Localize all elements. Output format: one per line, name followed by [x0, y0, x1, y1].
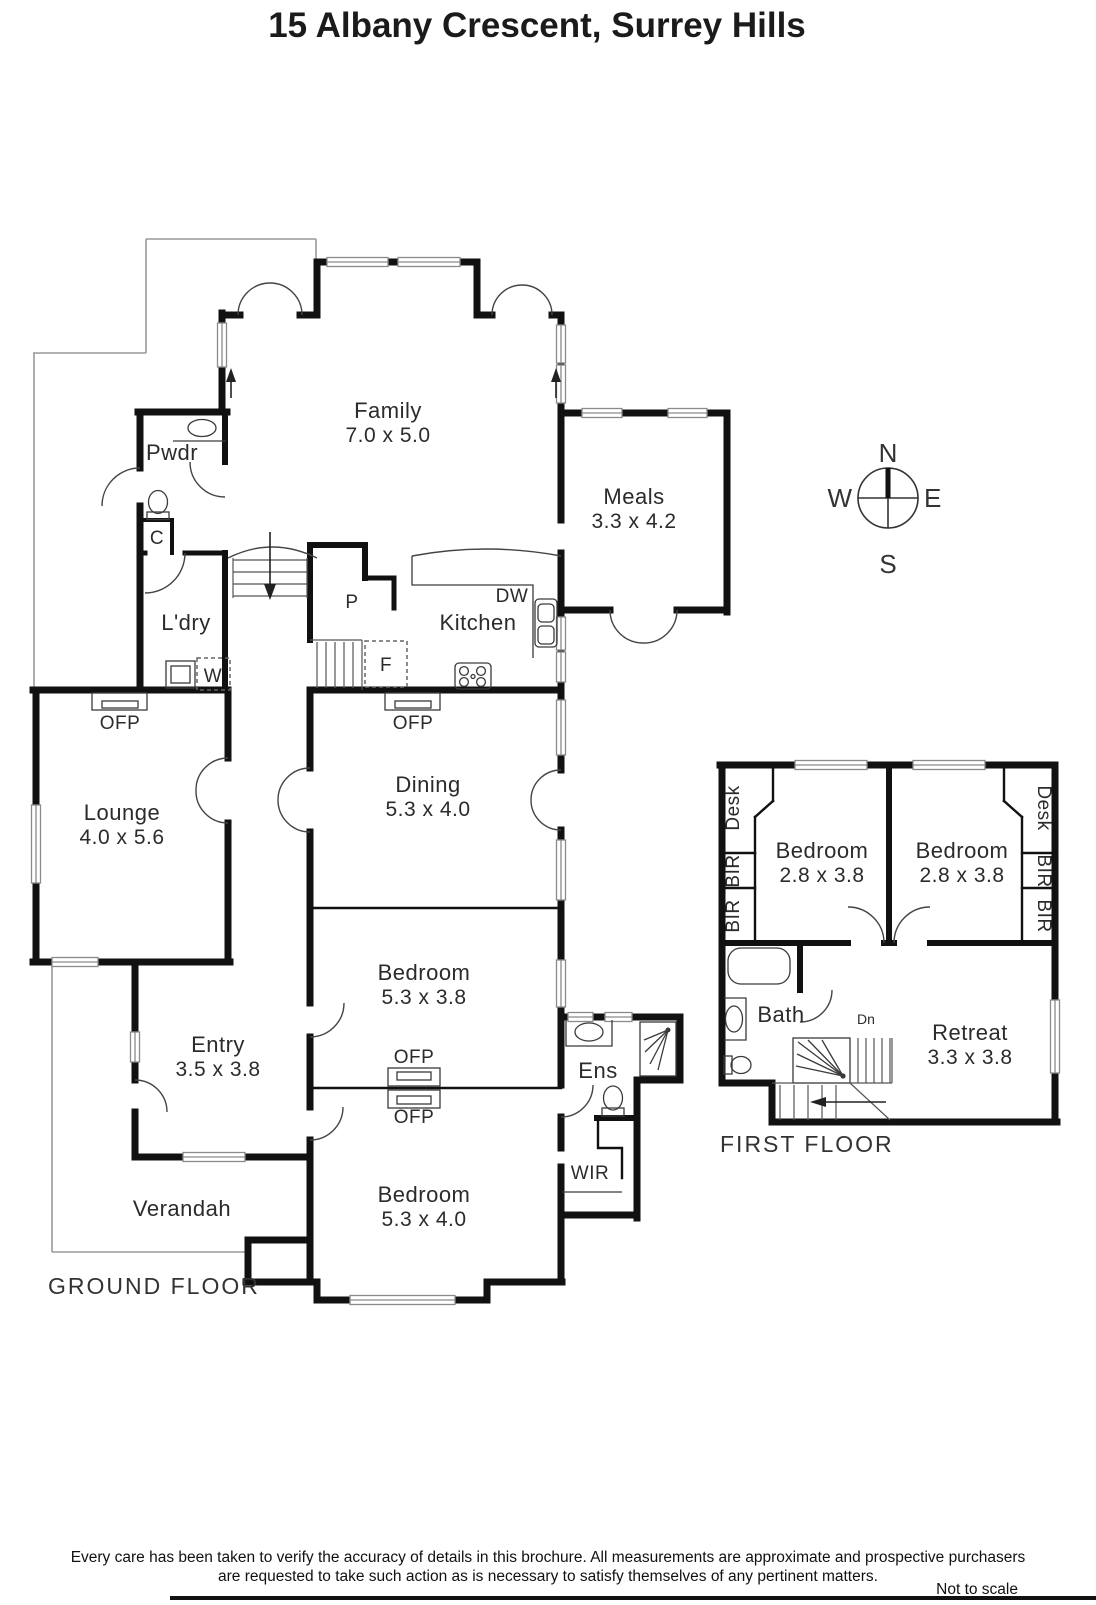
label-washer: W — [204, 666, 222, 687]
compass: N S W E — [827, 438, 941, 579]
room-label-ldry: L'dry — [161, 610, 211, 635]
floorplan-svg: 15 Albany Crescent, Surrey Hills — [0, 0, 1096, 1600]
disclaimer-line-2: are requested to take such action as is … — [218, 1568, 878, 1585]
bath-vanity — [724, 998, 746, 1040]
label-fridge: F — [380, 655, 392, 676]
stairs-down-arrow-first — [810, 1097, 826, 1107]
ensuite-toilet — [602, 1086, 624, 1116]
disclaimer-line-1: Every care has been taken to verify the … — [71, 1549, 1026, 1566]
room-label-bedleft-dims: 2.8 x 3.8 — [779, 864, 864, 887]
room-label-retreat-name: Retreat — [932, 1020, 1008, 1045]
label-ofp-dining: OFP — [393, 713, 434, 734]
room-label-dining-name: Dining — [395, 772, 460, 797]
ensuite-shower — [640, 1022, 676, 1076]
kitchen-counter — [412, 556, 533, 658]
entry-arrow-west — [226, 368, 236, 398]
room-label-meals-dims: 3.3 x 4.2 — [591, 510, 676, 533]
room-label-bedleft-name: Bedroom — [776, 838, 869, 863]
label-desk-left: Desk — [723, 785, 744, 830]
cooktop — [455, 663, 491, 689]
room-label-pwdr: Pwdr — [146, 440, 198, 465]
first-floor-doors — [800, 907, 930, 1022]
room-label-kitchen: Kitchen — [440, 610, 517, 635]
not-to-scale: Not to scale — [936, 1581, 1018, 1598]
room-label-ens: Ens — [578, 1058, 617, 1083]
bottom-edge-bar — [170, 1596, 1096, 1600]
room-label-bedright-name: Bedroom — [916, 838, 1009, 863]
room-label-family-dims: 7.0 x 5.0 — [345, 424, 430, 447]
label-ofp-bedroom2: OFP — [394, 1107, 435, 1128]
bathtub — [728, 948, 790, 984]
first-floor-stairs — [772, 1038, 892, 1120]
room-label-wir: WIR — [571, 1163, 609, 1184]
label-dishwasher: DW — [496, 586, 529, 607]
footer: Every care has been taken to verify the … — [71, 1549, 1096, 1600]
room-label-bedroom1-dims: 5.3 x 3.8 — [381, 986, 466, 1009]
label-down: Dn — [857, 1011, 875, 1027]
room-label-retreat-dims: 3.3 x 3.8 — [927, 1046, 1012, 1069]
lounge-fireplace — [92, 693, 147, 710]
room-label-bedright-dims: 2.8 x 3.8 — [919, 864, 1004, 887]
room-label-bath: Bath — [757, 1002, 804, 1027]
pwdr-toilet — [149, 491, 168, 514]
room-label-bedroom2-dims: 5.3 x 4.0 — [381, 1208, 466, 1231]
room-label-bedroom1-name: Bedroom — [378, 960, 471, 985]
pwdr-basin — [188, 420, 216, 437]
verandah-outline — [33, 239, 316, 1252]
label-bir-left-1: BIR — [723, 854, 744, 887]
stairs-down-arrow — [264, 584, 276, 600]
label-bir-right-1: BIR — [1033, 854, 1054, 887]
label-bir-left-2: BIR — [723, 899, 744, 932]
floorplan-page: 15 Albany Crescent, Surrey Hills — [0, 0, 1096, 1605]
room-label-bedroom2-name: Bedroom — [378, 1182, 471, 1207]
label-bir-right-2: BIR — [1033, 899, 1054, 932]
compass-east: E — [924, 483, 941, 513]
compass-west: W — [827, 483, 852, 513]
label-ofp-bedroom1: OFP — [394, 1047, 435, 1068]
room-label-dining-dims: 5.3 x 4.0 — [385, 798, 470, 821]
page-title: 15 Albany Crescent, Surrey Hills — [268, 6, 806, 45]
ensuite-vanity — [566, 1020, 612, 1046]
dining-fireplace — [385, 693, 440, 710]
first-floor-windows — [795, 761, 1060, 1074]
room-label-lounge-name: Lounge — [84, 800, 160, 825]
room-label-meals-name: Meals — [603, 484, 664, 509]
ground-floor-title: GROUND FLOOR — [48, 1273, 260, 1299]
room-label-family-name: Family — [354, 398, 422, 423]
bath-toilet — [724, 1056, 751, 1074]
first-floor-title: FIRST FLOOR — [720, 1131, 894, 1157]
room-label-entry-dims: 3.5 x 3.8 — [175, 1058, 260, 1081]
label-pantry: P — [345, 592, 358, 613]
room-label-lounge-dims: 4.0 x 5.6 — [79, 826, 164, 849]
label-ofp-lounge: OFP — [100, 713, 141, 734]
label-cupboard: C — [150, 528, 164, 549]
compass-north: N — [879, 438, 898, 468]
room-label-verandah: Verandah — [133, 1196, 231, 1221]
room-label-entry-name: Entry — [191, 1032, 245, 1057]
compass-south: S — [879, 549, 896, 579]
label-desk-right: Desk — [1033, 785, 1054, 830]
